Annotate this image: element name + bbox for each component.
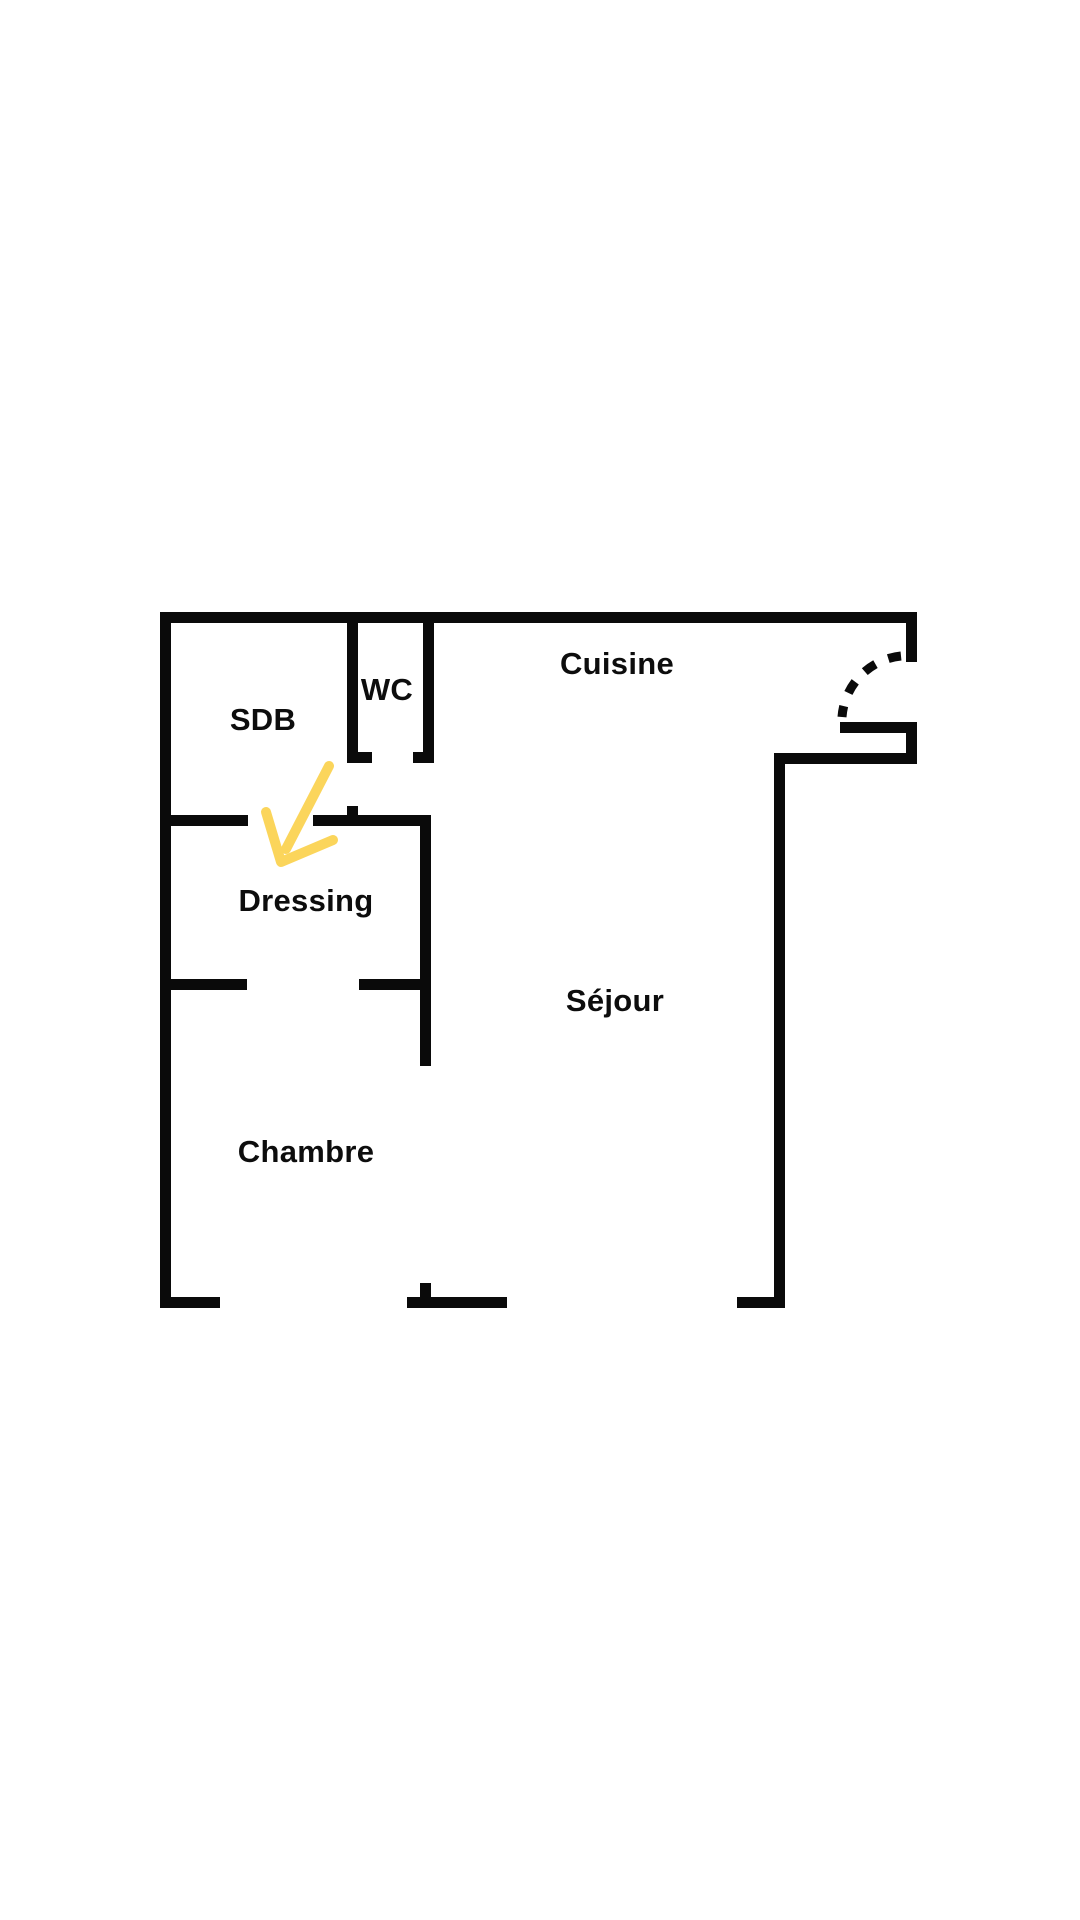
wall-segment-dressing-right-wall xyxy=(420,815,431,1066)
wall-segment-sdb-dressing-wall-right xyxy=(313,815,431,826)
room-label-chambre: Chambre xyxy=(238,1134,374,1170)
wall-segment-right-wall-upper xyxy=(906,612,917,662)
wall-segment-wc-left-wall xyxy=(347,623,358,763)
wall-segment-dressing-chambre-wall-left xyxy=(160,979,247,990)
wall-segment-bottom-wall-left xyxy=(160,1297,220,1308)
wall-segment-entry-stub-wall xyxy=(840,722,917,733)
room-label-sejour: Séjour xyxy=(566,983,664,1019)
entrance-door-swing-arc-icon xyxy=(842,656,901,717)
wall-segment-sejour-right-wall xyxy=(774,753,785,1308)
wall-segment-sdb-dressing-wall-left xyxy=(160,815,248,826)
wall-segment-bottom-wall-center xyxy=(407,1297,507,1308)
wall-segment-wc-left-door-jamb xyxy=(347,752,372,763)
room-label-sdb: SDB xyxy=(230,702,296,738)
wall-segment-top-wall xyxy=(160,612,917,623)
room-label-dressing: Dressing xyxy=(238,883,373,919)
wall-segment-left-wall xyxy=(160,612,171,1308)
wall-segment-dressing-chambre-wall-right xyxy=(359,979,431,990)
wall-segment-wc-right-door-jamb xyxy=(413,752,434,763)
room-label-cuisine: Cuisine xyxy=(560,646,674,682)
wall-segment-wc-right-wall xyxy=(423,623,434,763)
arrow-shaft-icon xyxy=(286,766,329,849)
wall-segment-sdb-dressing-wall-jamb xyxy=(347,806,358,815)
room-label-wc: WC xyxy=(361,672,413,708)
floorplan-drawing xyxy=(0,0,1080,1920)
wall-segment-bottom-wall-center-jamb xyxy=(420,1283,431,1297)
floorplan-page: CuisineWCSDBDressingSéjourChambre xyxy=(0,0,1080,1920)
wall-segment-entry-inset-wall xyxy=(774,753,917,764)
